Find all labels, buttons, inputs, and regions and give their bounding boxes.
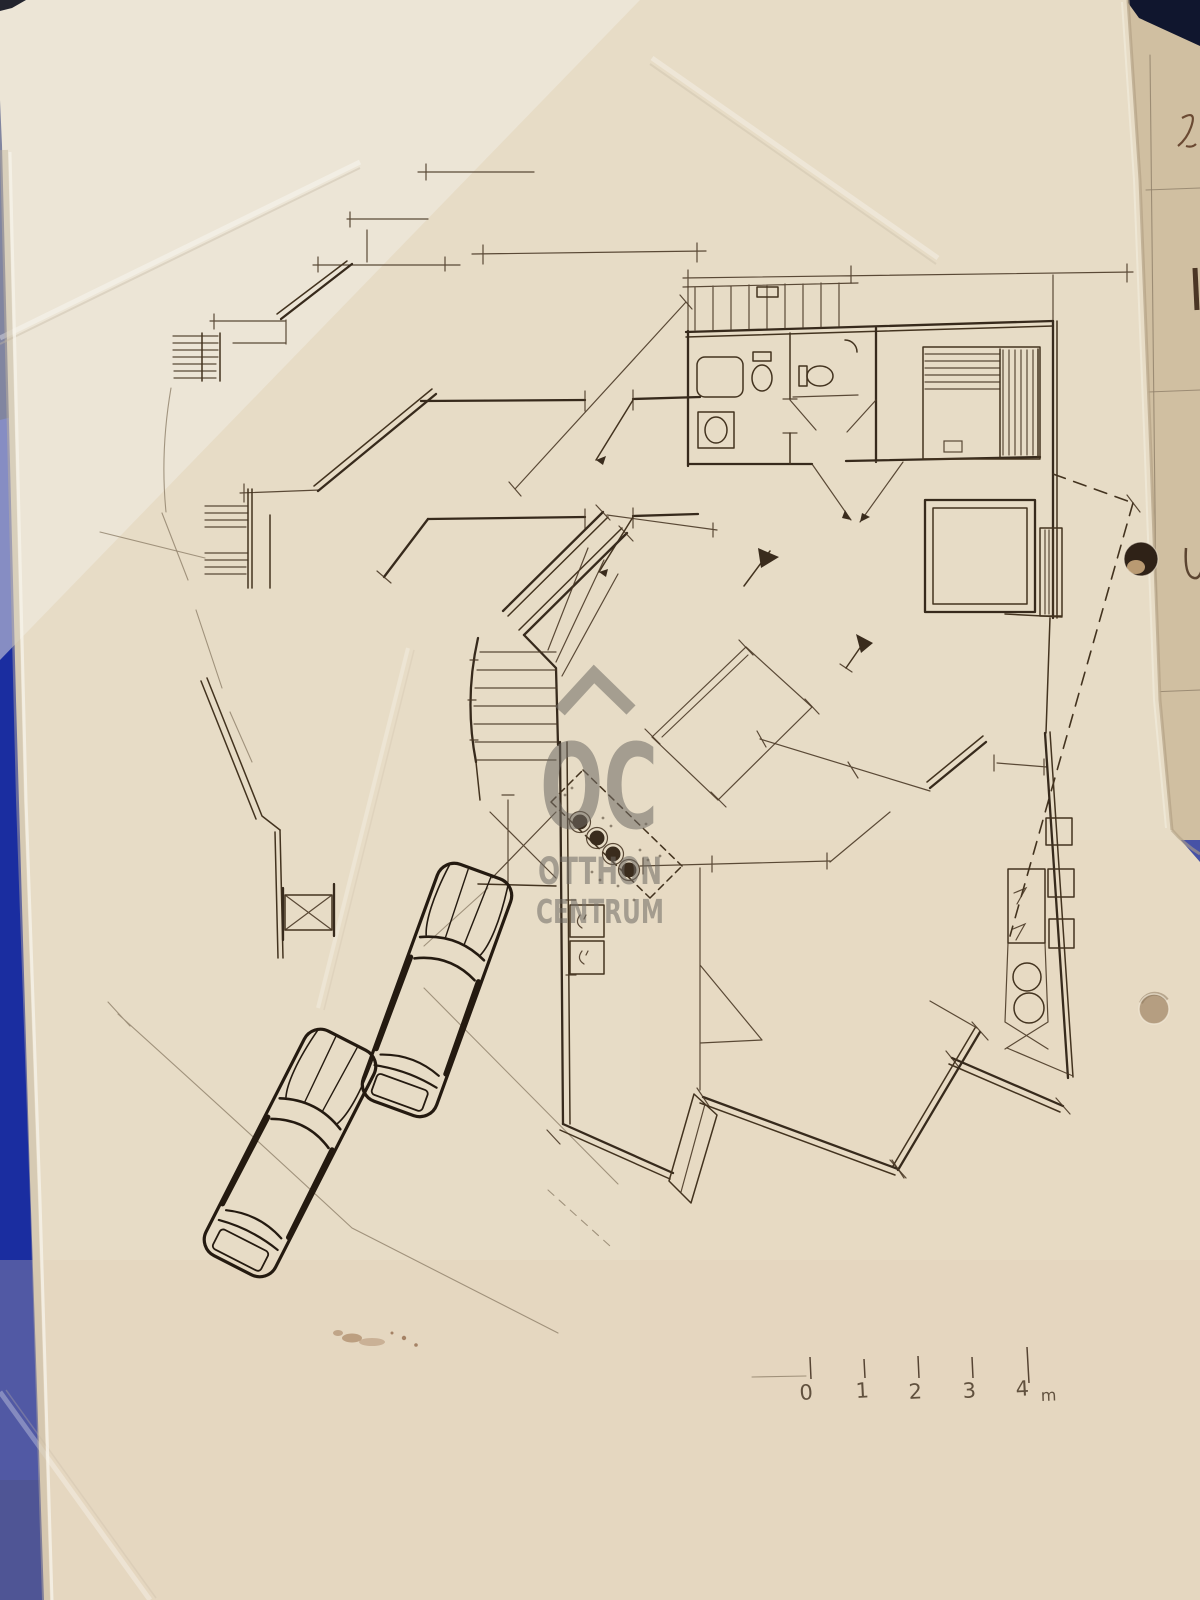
scale-label-1: 1 xyxy=(855,1378,870,1403)
watermark-line1: OTTHON xyxy=(538,850,662,893)
floor-plan-photo: 0 1 2 3 4 m OC OTTHON CENTRUM xyxy=(0,0,1200,1600)
punch-hole-top xyxy=(1124,542,1158,576)
scale-unit: m xyxy=(1040,1385,1056,1405)
scale-label-3: 3 xyxy=(962,1378,977,1403)
scale-label-0: 0 xyxy=(799,1380,814,1405)
punch-hole-bottom xyxy=(1139,994,1169,1024)
scale-label-4: 4 xyxy=(1015,1376,1030,1401)
watermark-monogram: OC xyxy=(540,718,658,856)
floor-plan-sketch: 0 1 2 3 4 m OC OTTHON CENTRUM xyxy=(0,0,1200,1600)
watermark-line2: CENTRUM xyxy=(536,892,664,931)
scale-label-2: 2 xyxy=(908,1379,923,1404)
handwriting-mark-middle xyxy=(1195,268,1197,310)
